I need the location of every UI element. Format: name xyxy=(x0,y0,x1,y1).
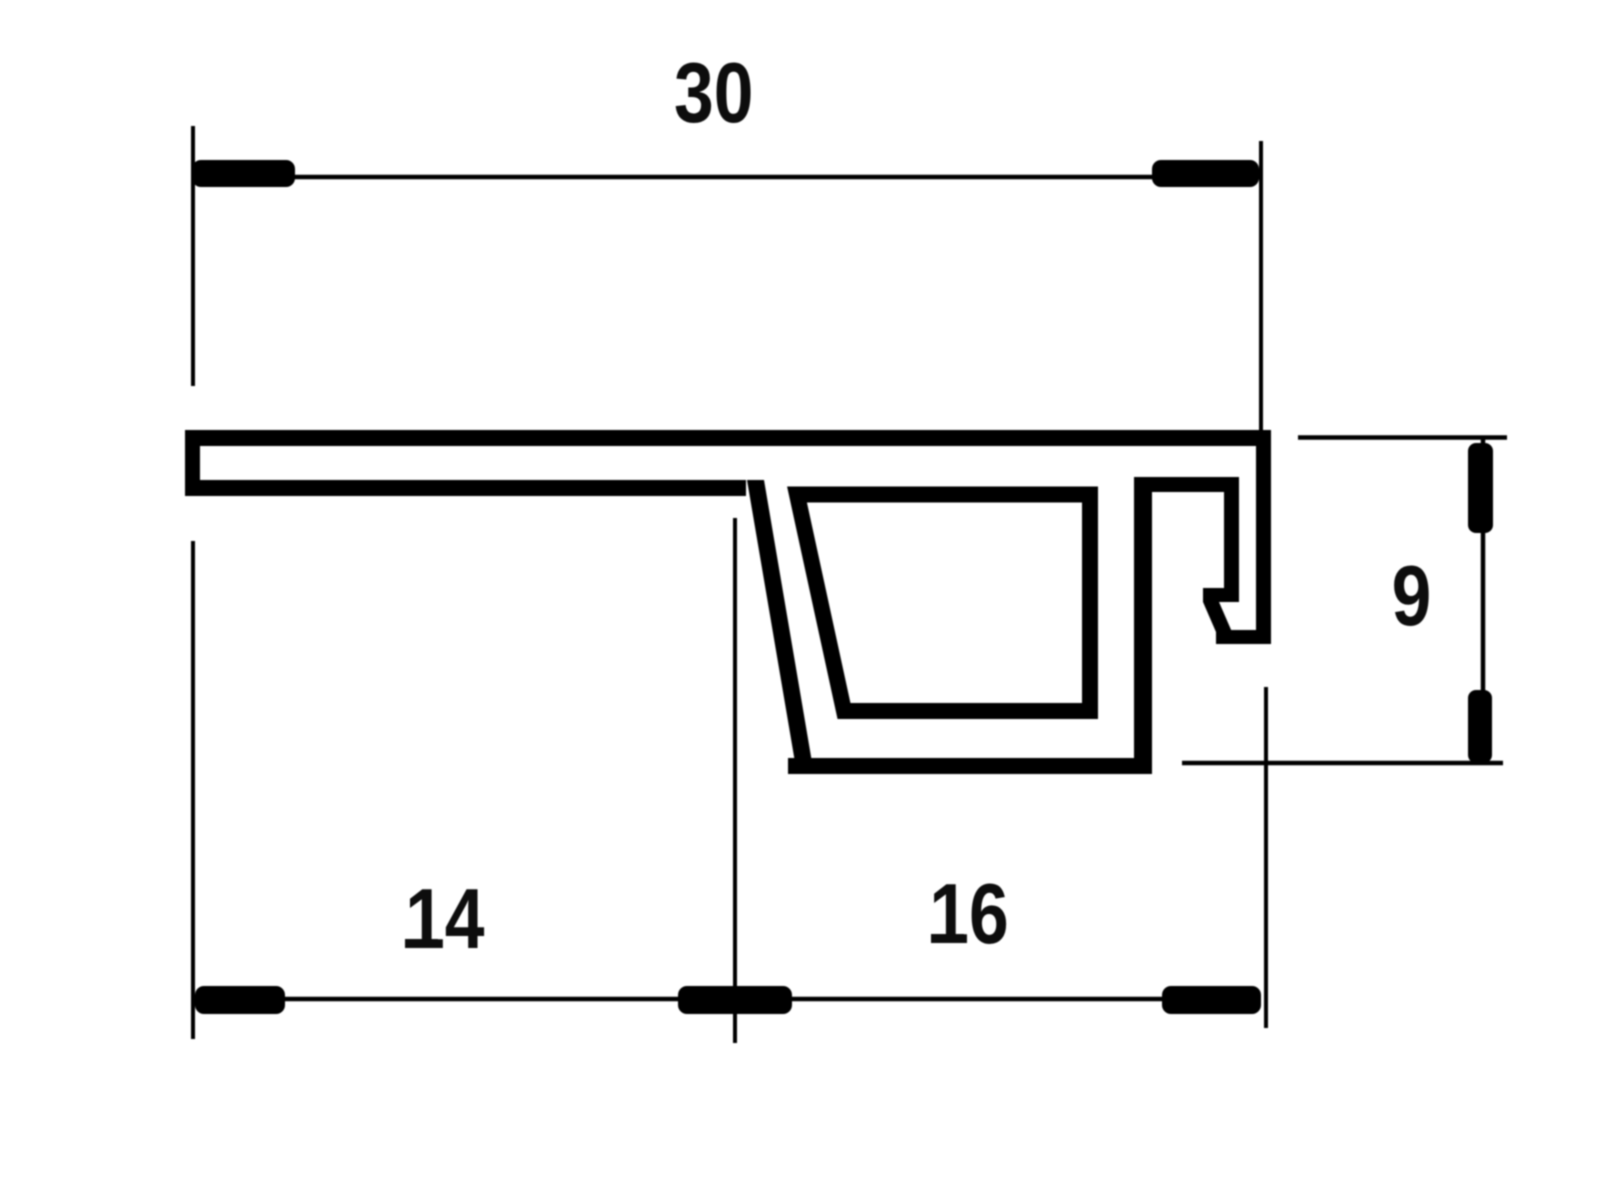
svg-text:9: 9 xyxy=(1392,548,1432,643)
svg-text:30: 30 xyxy=(674,45,753,140)
svg-text:14: 14 xyxy=(405,871,485,966)
svg-text:16: 16 xyxy=(929,866,1008,961)
